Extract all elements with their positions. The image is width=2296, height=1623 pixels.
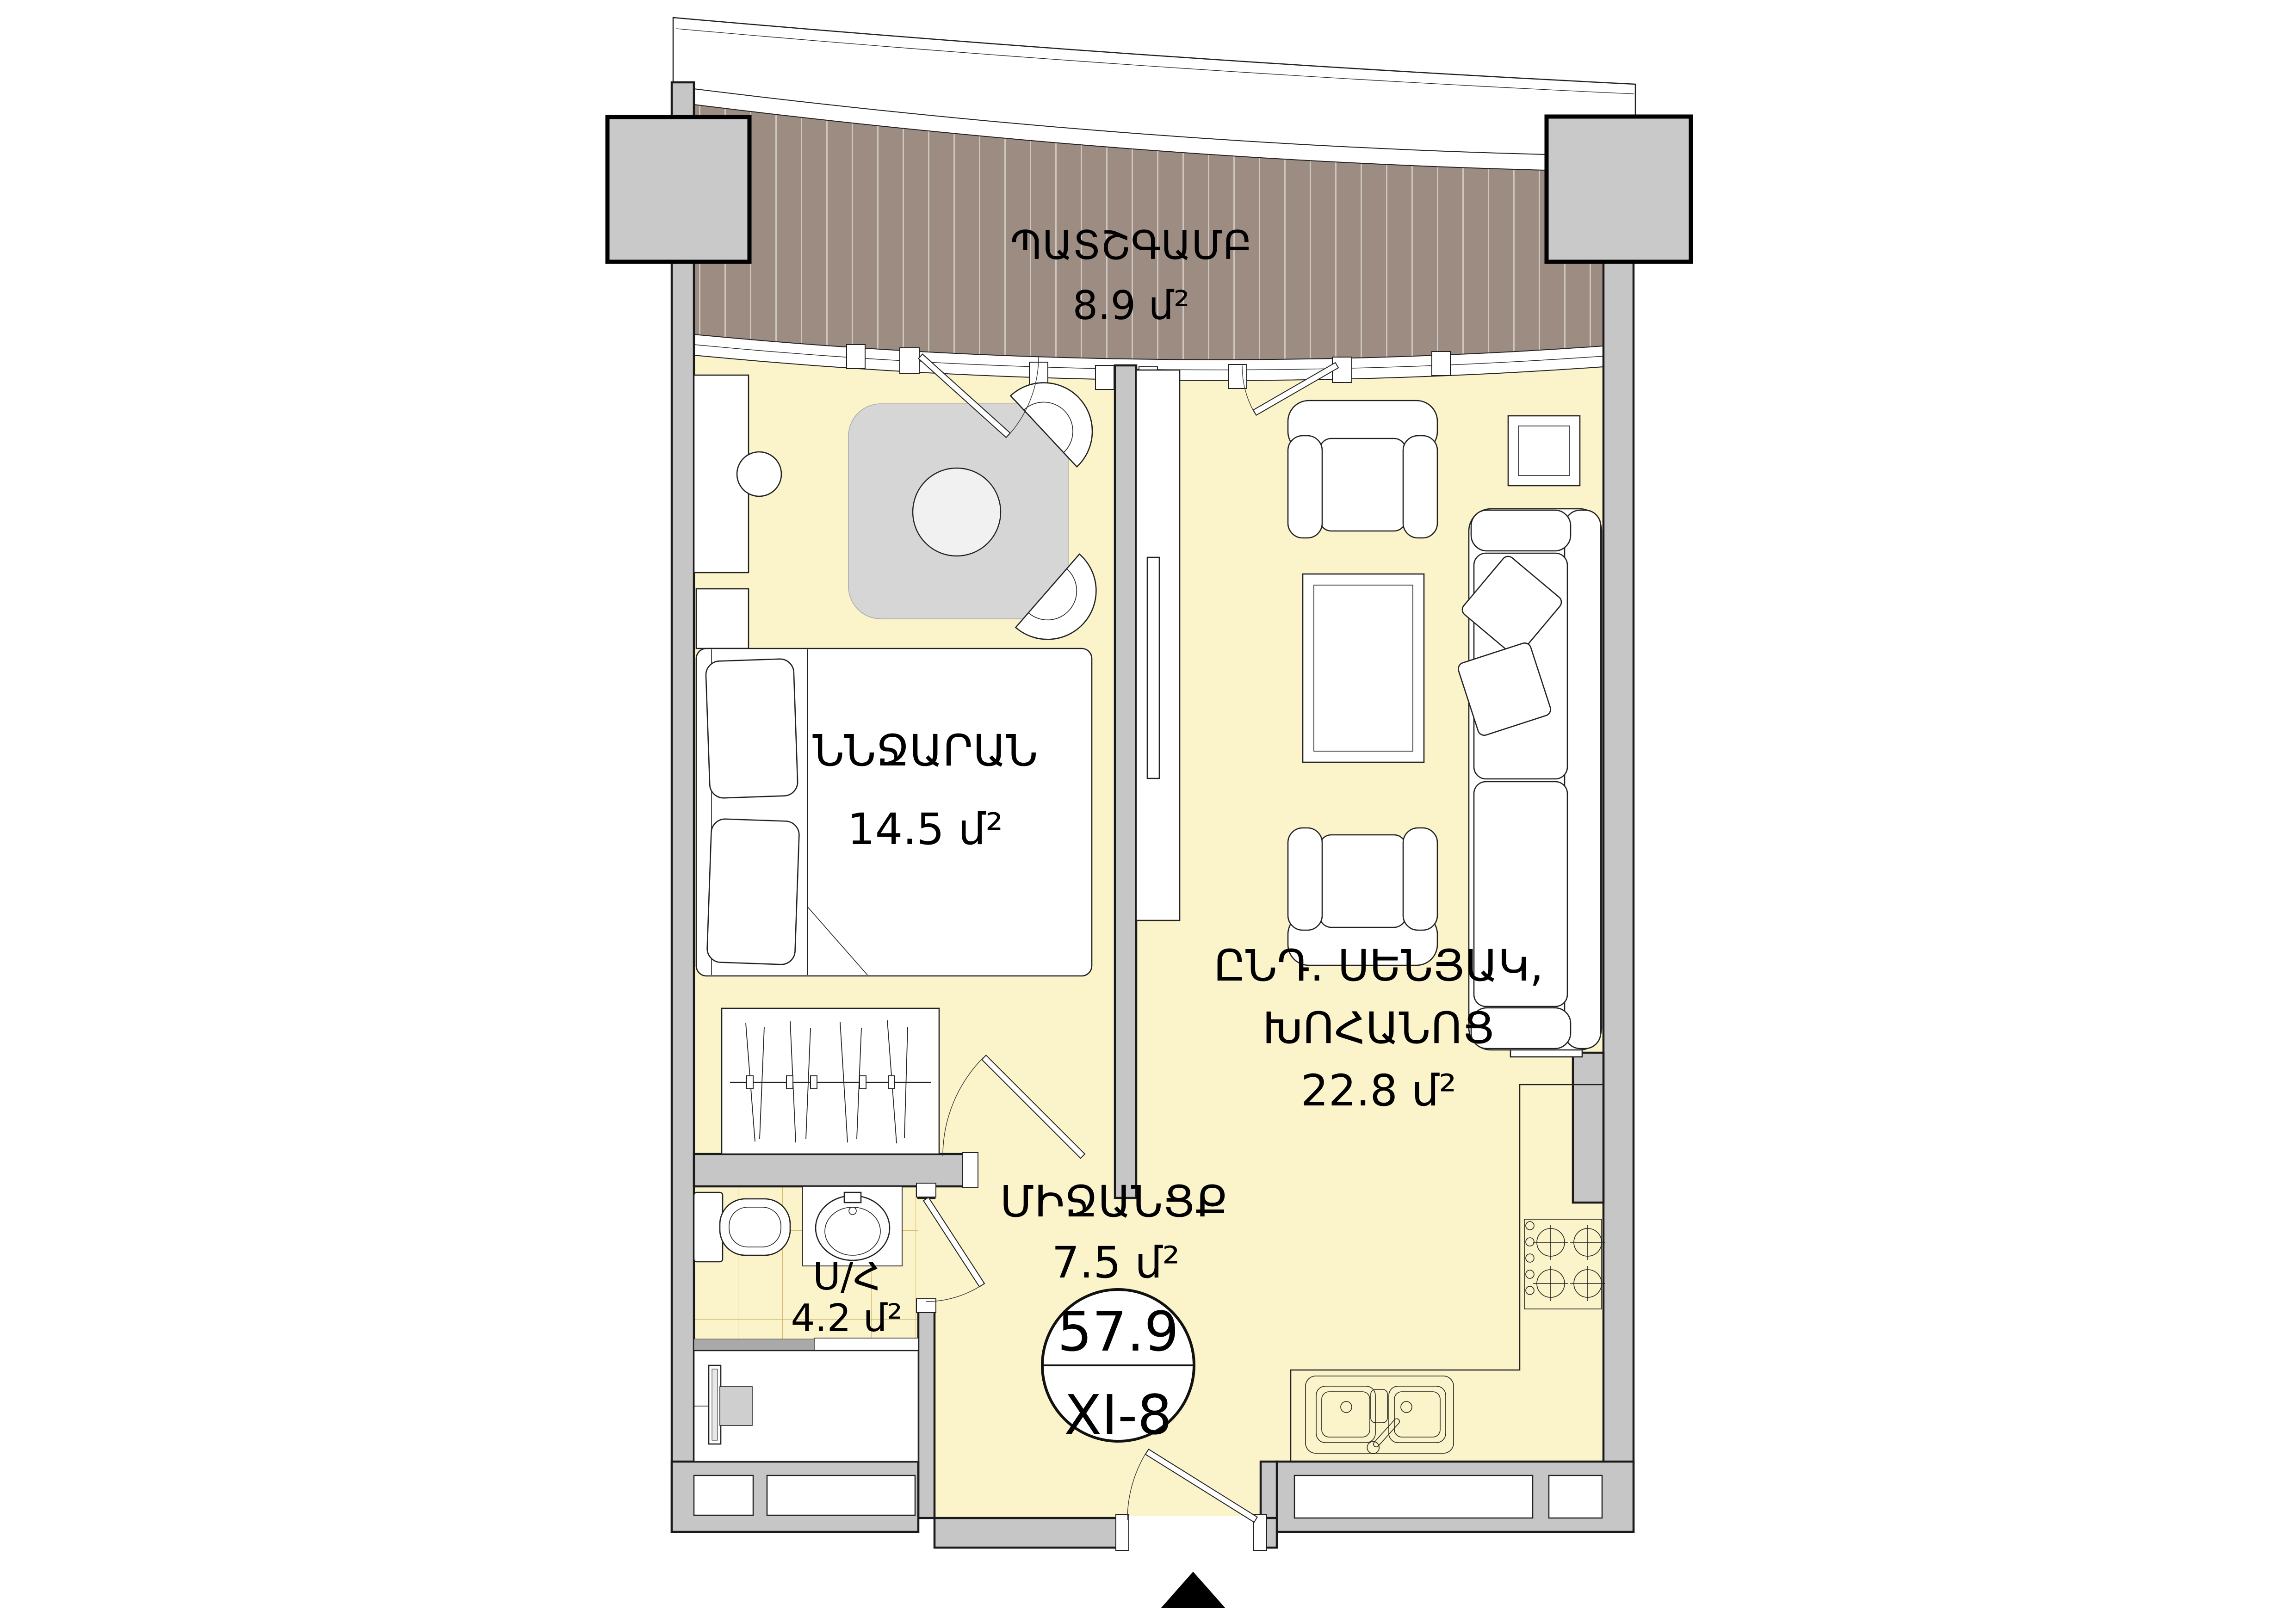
balcony-label: ՊԱՏՇԳԱՄԲ bbox=[1010, 222, 1252, 269]
bedroom-area: 14.5 մ² bbox=[848, 804, 1003, 855]
living-label-line2: ԽՈՀԱՆՈՑ bbox=[1262, 1003, 1495, 1054]
living-area: 22.8 մ² bbox=[1301, 1066, 1456, 1116]
washbasin bbox=[816, 1196, 890, 1260]
pillar-mid-right bbox=[1573, 1053, 1603, 1203]
bathroom-area: 4.2 մ² bbox=[791, 1296, 902, 1340]
floor-plan-page: ՊԱՏՇԳԱՄԲ 8.9 մ² ՆՆՋԱՐԱՆ 14.5 մ² ԸՆԴ. ՍԵՆ… bbox=[0, 0, 2296, 1623]
wall-right bbox=[1603, 261, 1634, 1532]
badge-unit-number: XI-8 bbox=[1064, 1383, 1172, 1447]
coffee-table bbox=[1303, 574, 1424, 762]
window-bottom-2 bbox=[767, 1475, 915, 1515]
sofa-back bbox=[1565, 510, 1601, 1049]
wall-bedroom-bathroom bbox=[694, 1154, 976, 1186]
wall-bathroom-right bbox=[918, 1302, 934, 1518]
wall-bottom-step bbox=[1261, 1462, 1277, 1519]
tub-screen bbox=[694, 1339, 814, 1351]
pillar-top-right bbox=[1547, 117, 1691, 262]
badge-total-area: 57.9 bbox=[1058, 1300, 1179, 1364]
pillar-top-left bbox=[607, 117, 749, 262]
hallway-area: 7.5 մ² bbox=[1052, 1238, 1180, 1288]
tv bbox=[1147, 557, 1159, 778]
stool bbox=[737, 452, 781, 496]
nightstand bbox=[696, 589, 749, 648]
pillow bbox=[707, 819, 800, 965]
entrance-jamb-left bbox=[1116, 1514, 1129, 1550]
bathroom-vanity bbox=[803, 1186, 902, 1266]
door-jamb bbox=[916, 1183, 936, 1197]
unit-badge: 57.9 XI-8 bbox=[1042, 1290, 1194, 1447]
basin-faucet bbox=[844, 1192, 861, 1203]
living-label-line1: ԸՆԴ. ՍԵՆՅԱԿ, bbox=[1213, 941, 1543, 991]
bedroom-label: ՆՆՋԱՐԱՆ bbox=[812, 726, 1038, 776]
wall-left bbox=[672, 82, 694, 1532]
toilet bbox=[694, 1192, 790, 1262]
door-jamb bbox=[962, 1153, 978, 1188]
window-mullion bbox=[1432, 352, 1450, 376]
sofa-armrest bbox=[1471, 510, 1571, 551]
hallway-label: ՄԻՋԱՆՑՔ bbox=[1000, 1177, 1228, 1227]
bathtub bbox=[694, 1338, 918, 1462]
wardrobe bbox=[722, 1008, 939, 1154]
wall-bedroom-living bbox=[1115, 365, 1136, 1198]
side-frame-top bbox=[1508, 416, 1580, 486]
bathroom-label: Ս/Հ bbox=[813, 1255, 880, 1299]
door-jamb bbox=[916, 1299, 936, 1313]
tv-cabinet bbox=[1136, 370, 1180, 920]
balcony-area: 8.9 մ² bbox=[1072, 283, 1189, 329]
window-mullion bbox=[1095, 365, 1114, 389]
shower-mixer bbox=[720, 1387, 752, 1426]
window-bottom-1 bbox=[694, 1475, 753, 1515]
armchair-top bbox=[1288, 401, 1437, 538]
window-mullion bbox=[847, 345, 865, 369]
round-table bbox=[913, 468, 1001, 556]
door-post bbox=[900, 348, 919, 373]
window-bottom-3 bbox=[1294, 1475, 1533, 1518]
pillow bbox=[706, 659, 798, 798]
window-bottom-4 bbox=[1549, 1475, 1602, 1518]
entrance-opening bbox=[1120, 1516, 1257, 1549]
floor-plan-canvas: ՊԱՏՇԳԱՄԲ 8.9 մ² ՆՆՋԱՐԱՆ 14.5 մ² ԸՆԴ. ՍԵՆ… bbox=[0, 0, 2296, 1623]
